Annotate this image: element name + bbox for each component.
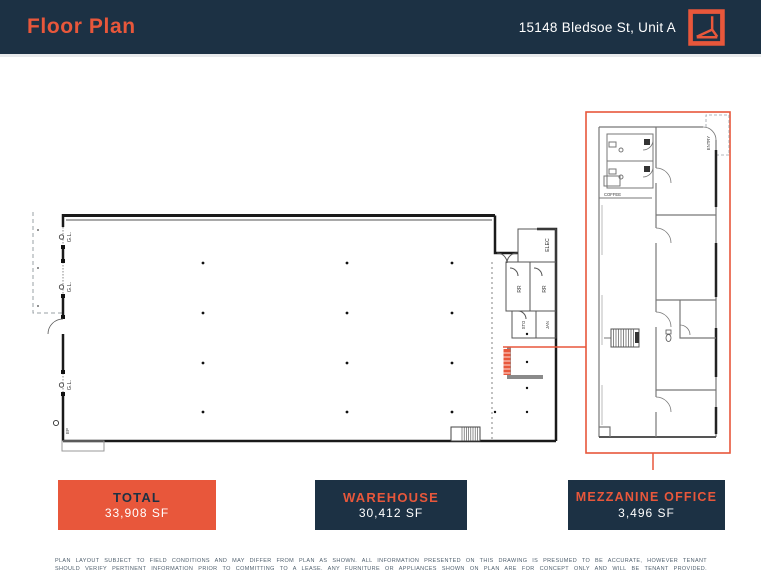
bottom-stair-detail: [451, 427, 480, 441]
jan-room-label: JAN: [545, 321, 550, 329]
coffee-label: COFFEE: [604, 192, 621, 197]
total-summary-box: TOTAL 33,908 SF: [58, 480, 216, 530]
ramp-outline: [62, 441, 104, 451]
total-value: 33,908 SF: [105, 507, 169, 519]
mezzanine-callout-frame: [586, 112, 730, 453]
warehouse-stair-highlight: [504, 349, 511, 375]
rr-room-label-2: RR: [542, 285, 548, 293]
bollard-symbol: [53, 420, 58, 425]
gl-label-3: G.L.: [67, 379, 73, 390]
mezzanine-summary-box: MEZZANINE OFFICE 3,496 SF: [568, 480, 725, 530]
door-swing-arc: [48, 319, 63, 334]
warehouse-summary-box: WAREHOUSE 30,412 SF: [315, 480, 467, 530]
warehouse-label: WAREHOUSE: [343, 491, 439, 504]
mezzanine-plan: [599, 115, 729, 437]
floor-plan-drawing: G.L. G.L. G.L. EP ELEC RR RR STO JAN: [0, 0, 761, 470]
callout-connector-lines: [503, 347, 653, 470]
warehouse-walls: [63, 214, 556, 441]
disclaimer: PLAN LAYOUT SUBJECT TO FIELD CONDITIONS …: [55, 558, 707, 574]
dock-dashed-line: [33, 212, 62, 313]
dock-dots: [37, 229, 39, 307]
warehouse-value: 30,412 SF: [359, 507, 423, 519]
mezzanine-value: 3,496 SF: [618, 507, 675, 519]
entry-label: ENTRY: [706, 136, 711, 150]
ep-label: EP: [65, 428, 70, 434]
gl-label-1: G.L.: [67, 231, 73, 242]
mezzanine-label: MEZZANINE OFFICE: [576, 491, 717, 504]
elec-room-label: ELEC: [545, 238, 551, 252]
column-grid-dots: [202, 262, 529, 414]
mezzanine-stairs: [604, 329, 639, 347]
sto-room-label: STO: [521, 320, 526, 329]
disclaimer-line-1: PLAN LAYOUT SUBJECT TO FIELD CONDITIONS …: [55, 558, 707, 566]
total-label: TOTAL: [113, 491, 161, 504]
gl-label-2: G.L.: [67, 281, 73, 292]
rr-room-label-1: RR: [517, 285, 523, 293]
disclaimer-line-2: SHOULD VERIFY PERTINENT INFORMATION PRIO…: [55, 566, 707, 574]
door-jambs: [61, 245, 65, 396]
